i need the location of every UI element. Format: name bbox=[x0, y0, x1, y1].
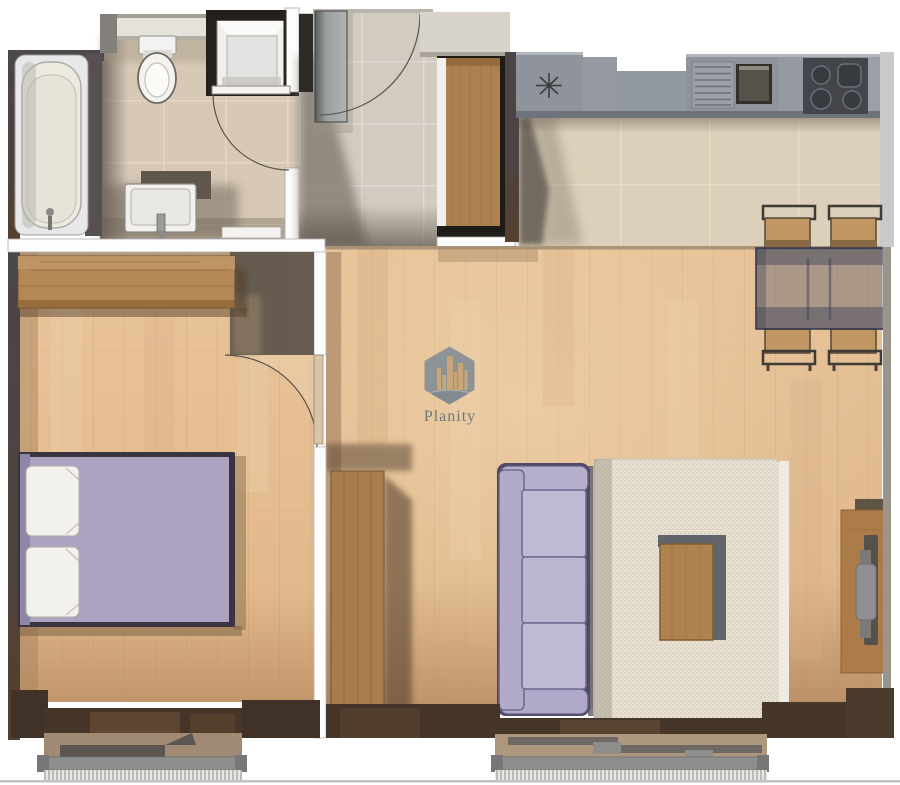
svg-text:Planity: Planity bbox=[424, 408, 476, 425]
